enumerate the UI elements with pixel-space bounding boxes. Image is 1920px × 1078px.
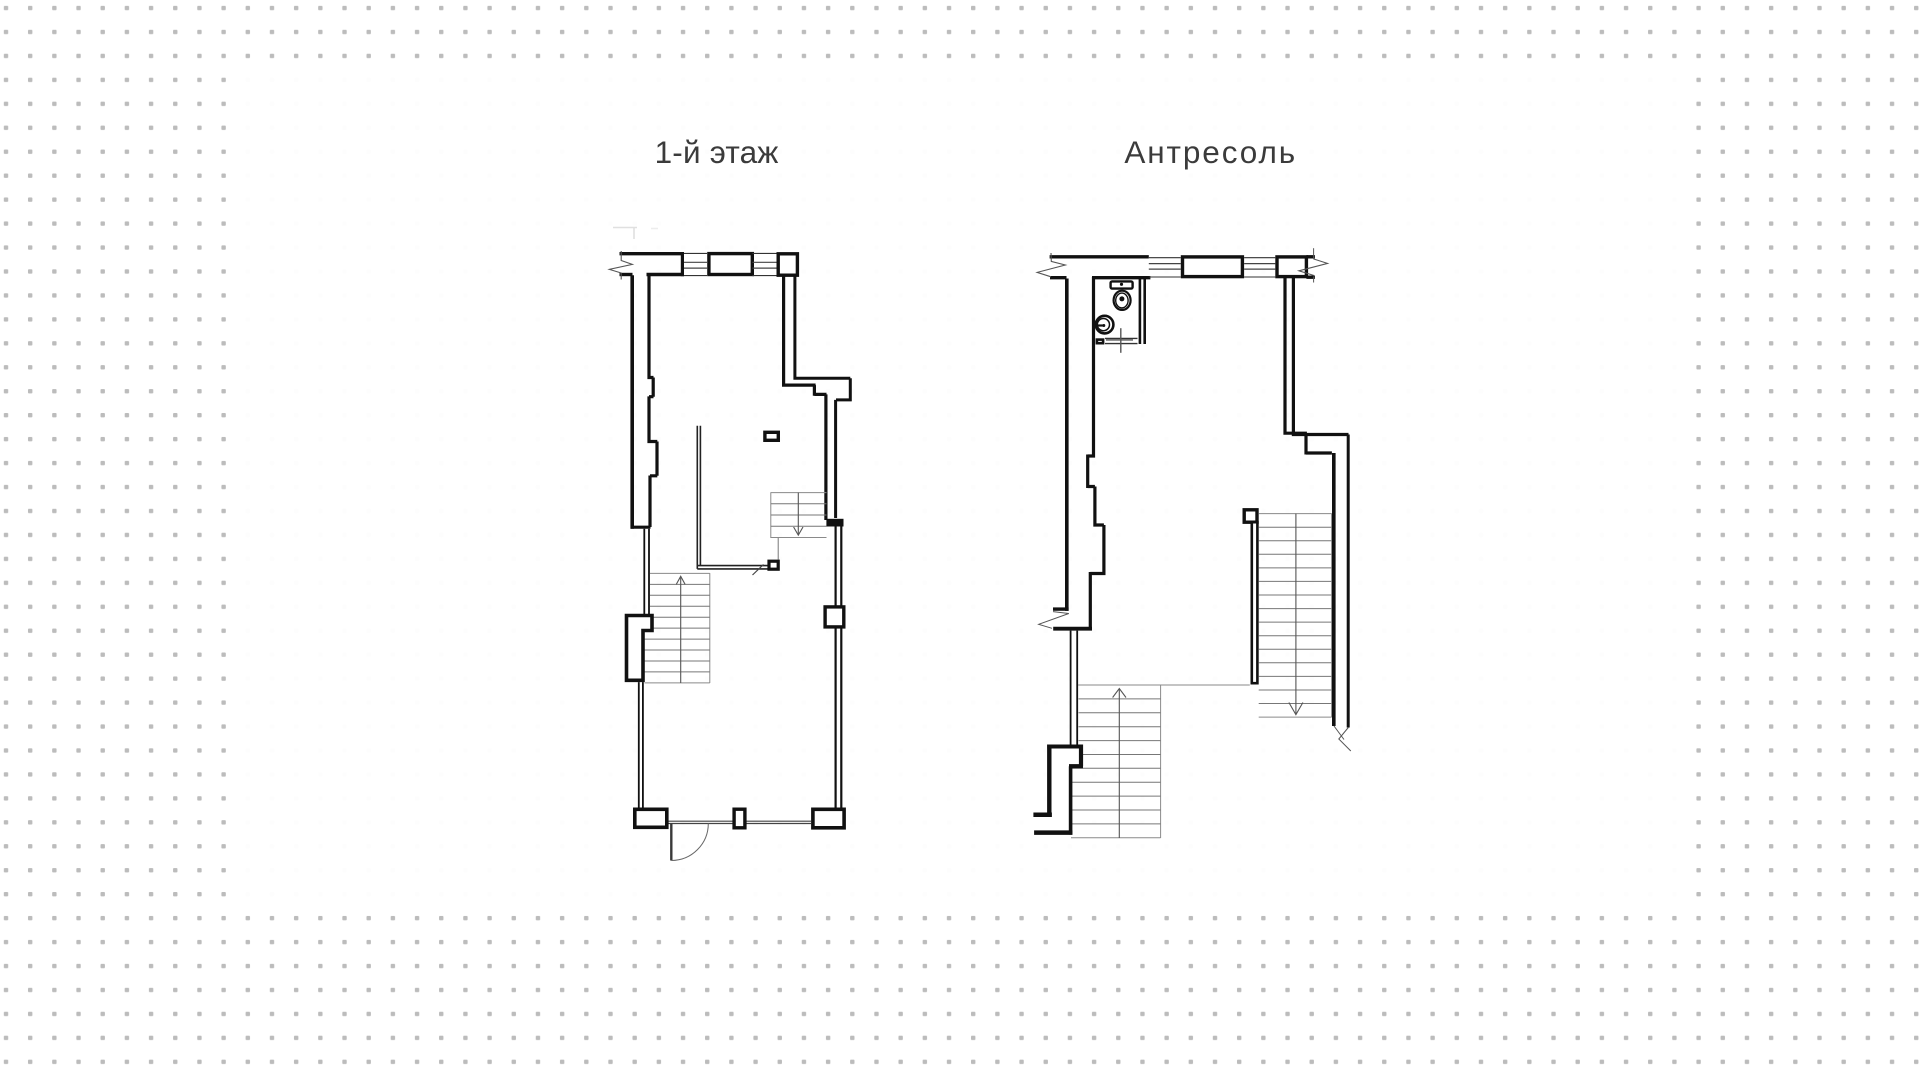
svg-text:Антресоль: Антресоль (1124, 134, 1297, 170)
svg-text:1-й этаж: 1-й этаж (655, 134, 779, 170)
